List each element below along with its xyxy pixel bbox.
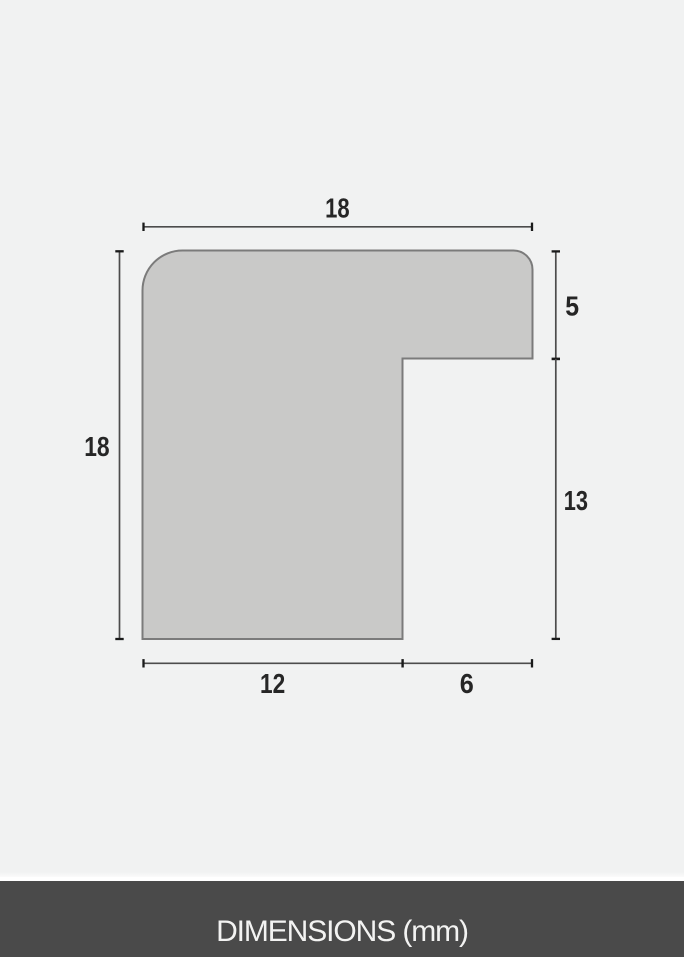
svg-text:13: 13 bbox=[564, 485, 588, 516]
svg-text:5: 5 bbox=[565, 291, 579, 322]
svg-text:6: 6 bbox=[460, 668, 474, 699]
svg-text:18: 18 bbox=[325, 193, 350, 224]
svg-text:18: 18 bbox=[84, 431, 109, 462]
svg-text:12: 12 bbox=[260, 668, 285, 699]
